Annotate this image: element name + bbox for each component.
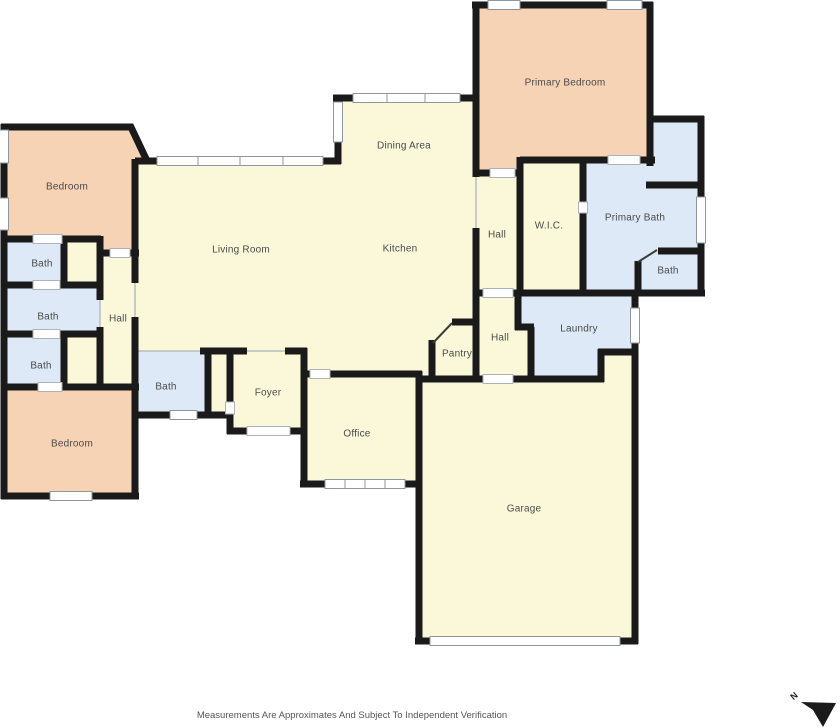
door-opening — [226, 402, 235, 414]
room-label-laundry: Laundry — [560, 324, 598, 335]
window — [50, 492, 92, 501]
door-opening — [608, 156, 640, 165]
door-opening — [490, 169, 515, 178]
room-fill-living-kitchen — [135, 98, 476, 374]
disclaimer-text: Measurements Are Approximates And Subjec… — [197, 710, 507, 721]
compass-north-label: N — [788, 690, 799, 702]
door-opening — [38, 383, 62, 392]
door-opening — [247, 427, 290, 436]
room-label-hall-west: Hall — [109, 314, 127, 325]
room-label-hall-south: Hall — [491, 333, 509, 344]
window — [631, 308, 640, 343]
room-fill-primary-bedroom — [476, 5, 650, 173]
room-label-kitchen: Kitchen — [383, 244, 418, 255]
window — [0, 198, 9, 230]
room-fill-garage — [419, 352, 635, 641]
door-opening — [483, 289, 513, 298]
room-fill-closet-1 — [64, 239, 100, 285]
room-label-pantry: Pantry — [442, 349, 472, 360]
door-opening — [483, 375, 513, 384]
room-fill-bath-2 — [4, 285, 100, 334]
north-arrow-icon — [801, 702, 836, 727]
room-label-bath-1: Bath — [31, 259, 52, 270]
window — [0, 130, 9, 163]
room-label-bath-primary-wc: Bath — [657, 266, 678, 277]
window — [488, 1, 520, 10]
room-label-dining-area: Dining Area — [377, 141, 431, 152]
room-label-foyer: Foyer — [255, 388, 282, 399]
window — [430, 637, 620, 646]
room-label-bath-3: Bath — [30, 361, 51, 372]
room-label-bath-2: Bath — [37, 312, 58, 323]
room-label-primary-bath: Primary Bath — [605, 213, 665, 224]
room-label-office: Office — [343, 429, 370, 440]
compass: N — [788, 690, 836, 727]
window — [697, 197, 706, 243]
room-label-garage: Garage — [507, 504, 542, 515]
door-opening — [33, 330, 60, 339]
room-label-bedroom-1: Bedroom — [46, 182, 88, 193]
window — [334, 102, 343, 142]
room-label-hall-center: Hall — [488, 230, 506, 241]
room-label-primary-bedroom: Primary Bedroom — [525, 78, 606, 89]
room-label-wic: W.I.C. — [535, 221, 563, 232]
window — [353, 94, 460, 103]
room-label-bedroom-2: Bedroom — [51, 439, 93, 450]
room-fill-closet-2 — [64, 334, 100, 387]
door-opening — [33, 235, 62, 244]
door-opening — [33, 281, 60, 290]
floorplan-svg: BedroomBathBathBathBedroomHallLiving Roo… — [0, 0, 840, 728]
window — [607, 1, 642, 10]
door-opening — [310, 370, 330, 379]
room-label-bath-center: Bath — [155, 382, 176, 393]
door-opening — [579, 202, 588, 213]
room-label-living-room: Living Room — [212, 245, 270, 256]
door-opening — [110, 249, 130, 258]
window — [170, 411, 197, 420]
